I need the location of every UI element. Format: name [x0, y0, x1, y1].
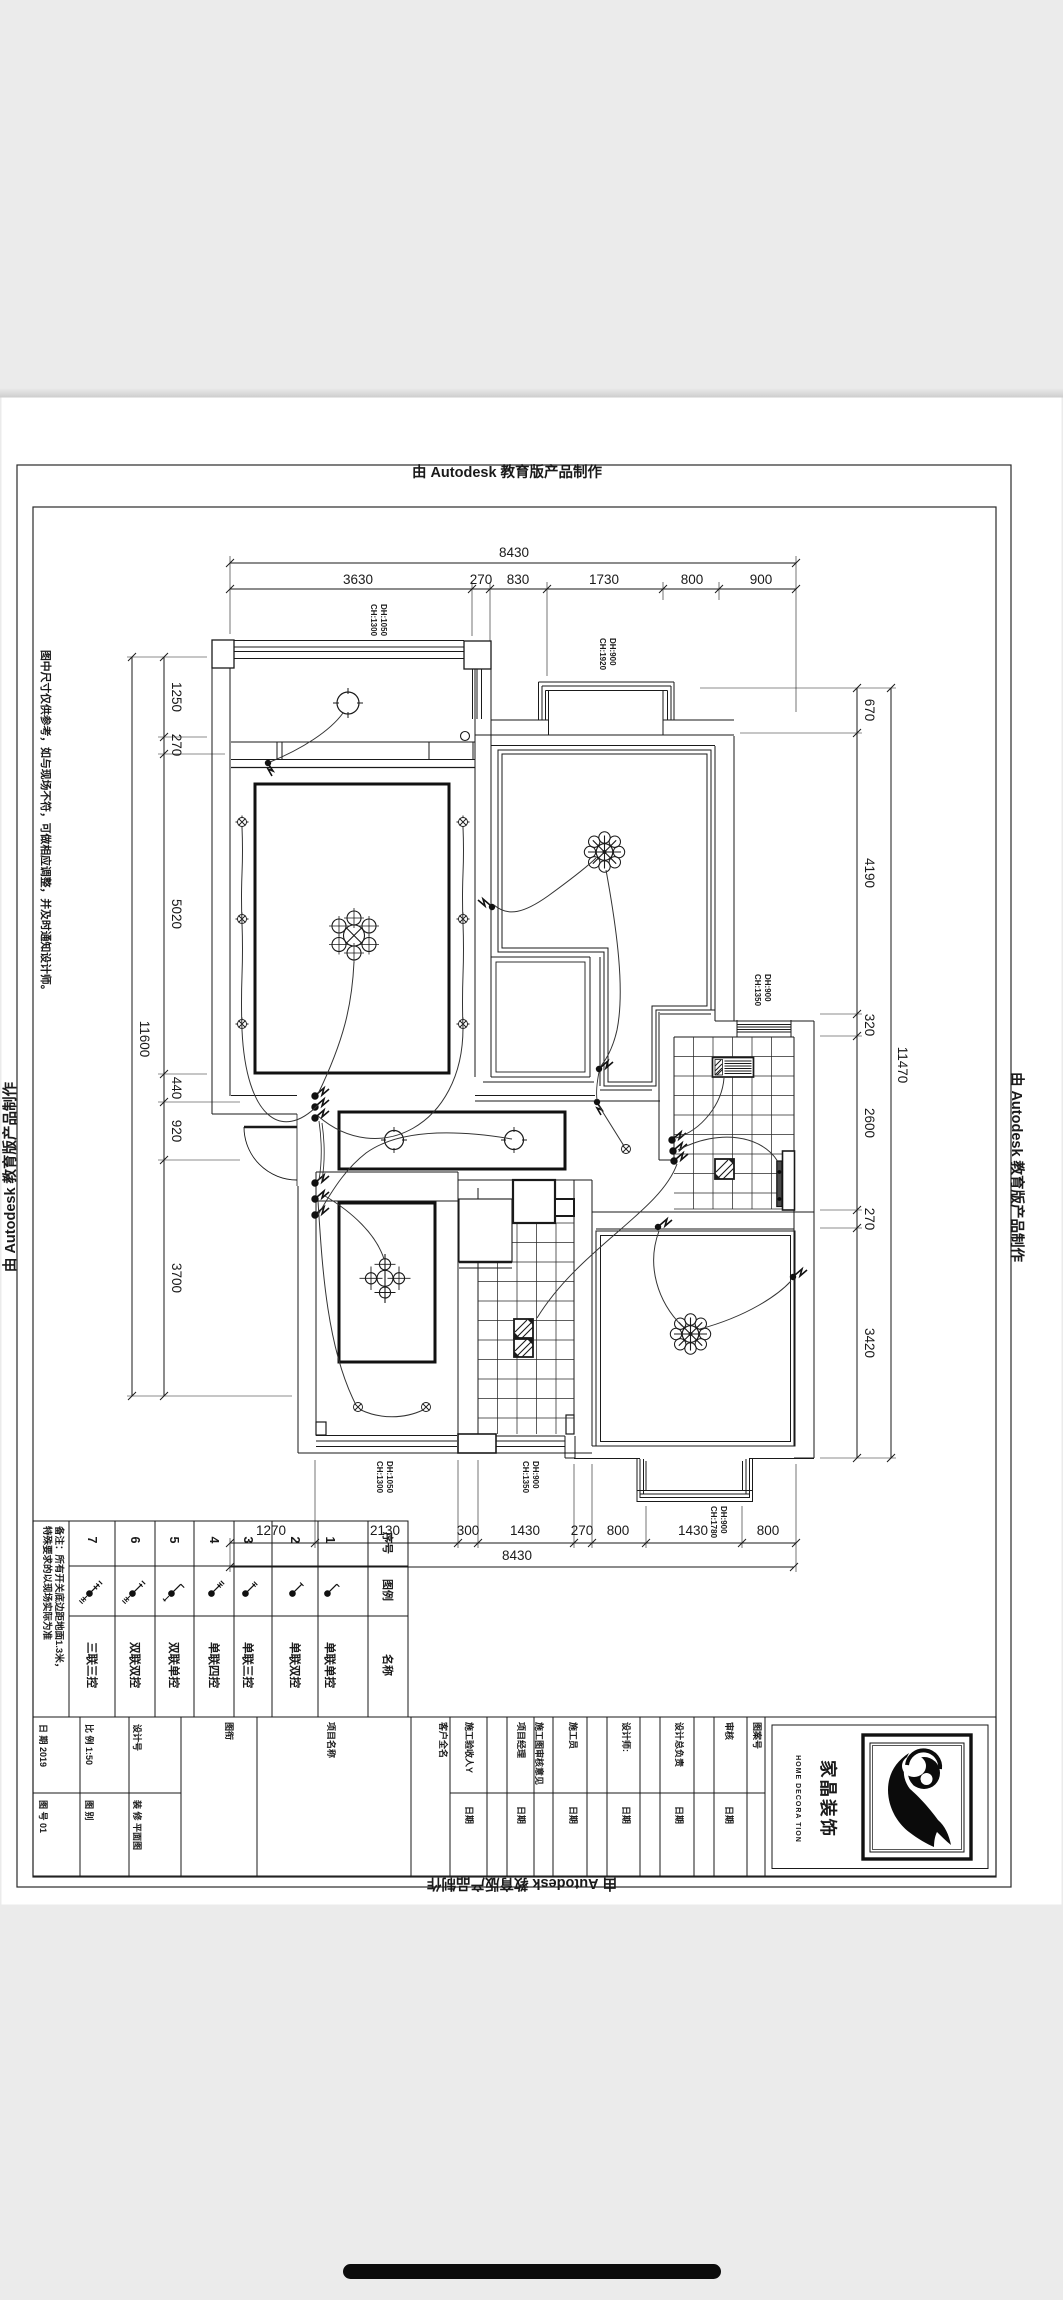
svg-text:序号: 序号 — [381, 1532, 395, 1554]
svg-text:1250: 1250 — [169, 682, 184, 712]
svg-text:单联三控: 单联三控 — [241, 1642, 255, 1688]
svg-text:三联三控: 三联三控 — [85, 1642, 99, 1688]
svg-text:3630: 3630 — [343, 572, 373, 587]
svg-text:1730: 1730 — [589, 572, 619, 587]
svg-text:图衔: 图衔 — [224, 1722, 235, 1740]
svg-text:施工员: 施工员 — [568, 1722, 579, 1749]
svg-text:11600: 11600 — [137, 1021, 152, 1058]
svg-text:DH:900: DH:900 — [719, 1506, 728, 1534]
svg-text:图 号 01: 图 号 01 — [38, 1800, 48, 1833]
svg-text:比 例 1:50: 比 例 1:50 — [84, 1724, 95, 1765]
svg-text:320: 320 — [862, 1014, 877, 1037]
svg-text:800: 800 — [681, 572, 704, 587]
svg-text:2600: 2600 — [862, 1108, 877, 1138]
svg-text:1270: 1270 — [256, 1523, 286, 1538]
svg-text:设计总负责: 设计总负责 — [674, 1722, 685, 1767]
svg-text:日 期 2019: 日 期 2019 — [38, 1724, 49, 1767]
svg-text:单联双控: 单联双控 — [288, 1642, 302, 1688]
svg-text:设计号: 设计号 — [132, 1724, 143, 1751]
svg-text:300: 300 — [457, 1523, 480, 1538]
svg-text:CH:1780: CH:1780 — [709, 1506, 718, 1539]
svg-text:DH:900: DH:900 — [608, 638, 617, 666]
svg-text:270: 270 — [862, 1208, 877, 1231]
svg-text:5020: 5020 — [169, 899, 184, 929]
svg-text:2: 2 — [288, 1537, 302, 1544]
svg-text:3700: 3700 — [169, 1263, 184, 1293]
svg-text:11470: 11470 — [895, 1047, 910, 1084]
svg-text:施工验收人Y: 施工验收人Y — [464, 1722, 475, 1773]
svg-text:920: 920 — [169, 1120, 184, 1143]
svg-text:CH:1350: CH:1350 — [521, 1461, 530, 1494]
svg-text:DH:1050: DH:1050 — [379, 604, 388, 637]
svg-text:DH:900: DH:900 — [763, 974, 772, 1002]
svg-text:6: 6 — [128, 1537, 142, 1544]
svg-text:270: 270 — [571, 1523, 594, 1538]
svg-text:800: 800 — [607, 1523, 630, 1538]
svg-text:DH:1050: DH:1050 — [385, 1461, 394, 1494]
svg-text:项目经理: 项目经理 — [516, 1722, 527, 1758]
svg-text:客户全名: 客户全名 — [438, 1721, 449, 1758]
svg-text:日期: 日期 — [516, 1806, 527, 1824]
svg-text:由 Autodesk 教育版产品制作: 由 Autodesk 教育版产品制作 — [412, 463, 603, 481]
svg-text:图中尺寸仅供参考，如与现场不符，可做相应调整，并及时通知设计: 图中尺寸仅供参考，如与现场不符，可做相应调整，并及时通知设计师。 — [39, 650, 53, 996]
svg-text:270: 270 — [470, 572, 493, 587]
svg-text:3: 3 — [241, 1537, 255, 1544]
svg-text:440: 440 — [169, 1077, 184, 1100]
svg-text:800: 800 — [757, 1523, 780, 1538]
svg-text:830: 830 — [507, 572, 530, 587]
svg-text:5: 5 — [167, 1537, 181, 1544]
svg-text:设计师:: 设计师: — [621, 1722, 632, 1752]
svg-text:7: 7 — [85, 1537, 99, 1544]
svg-text:CH:1300: CH:1300 — [375, 1461, 384, 1494]
svg-text:8430: 8430 — [499, 545, 529, 560]
svg-text:施工图审核意见: 施工图审核意见 — [534, 1722, 545, 1785]
svg-text:3420: 3420 — [862, 1328, 877, 1358]
svg-text:双联单控: 双联单控 — [167, 1641, 181, 1688]
svg-text:DH:900: DH:900 — [531, 1461, 540, 1489]
svg-text:项目名称: 项目名称 — [326, 1722, 337, 1758]
svg-text:日期: 日期 — [464, 1806, 475, 1824]
svg-text:CH:1920: CH:1920 — [598, 638, 607, 671]
svg-text:单联四控: 单联四控 — [207, 1642, 221, 1688]
svg-text:900: 900 — [750, 572, 773, 587]
svg-text:4: 4 — [207, 1537, 221, 1544]
svg-text:由 Autodesk 教育版产品制作: 由 Autodesk 教育版产品制作 — [426, 1875, 617, 1893]
svg-text:CH:1350: CH:1350 — [753, 974, 762, 1007]
svg-text:单联单控: 单联单控 — [323, 1642, 337, 1688]
svg-text:270: 270 — [169, 734, 184, 757]
svg-text:双联双控: 双联双控 — [128, 1641, 142, 1688]
svg-text:4190: 4190 — [862, 858, 877, 888]
svg-text:日期: 日期 — [674, 1806, 685, 1824]
svg-text:1430: 1430 — [510, 1523, 540, 1538]
svg-text:图案号: 图案号 — [752, 1722, 763, 1749]
svg-text:审核: 审核 — [724, 1722, 735, 1740]
svg-text:8430: 8430 — [502, 1548, 532, 1563]
svg-text:1430: 1430 — [678, 1523, 708, 1538]
svg-text:1: 1 — [323, 1537, 337, 1544]
svg-text:日期: 日期 — [621, 1806, 632, 1824]
svg-text:日期: 日期 — [724, 1806, 735, 1824]
svg-text:日期: 日期 — [568, 1806, 579, 1824]
svg-text:由 Autodesk 教育版产品制作: 由 Autodesk 教育版产品制作 — [1, 1081, 19, 1272]
svg-text:图例: 图例 — [381, 1579, 395, 1601]
svg-text:备注：所有开关底边距地面1.3米，: 备注：所有开关底边距地面1.3米， — [53, 1525, 65, 1672]
svg-text:图 别: 图 别 — [84, 1800, 95, 1821]
svg-text:CH:1300: CH:1300 — [369, 604, 378, 637]
svg-text:名称: 名称 — [381, 1654, 395, 1676]
svg-text:特殊要求的以现场实际为准: 特殊要求的以现场实际为准 — [41, 1526, 53, 1641]
svg-text:由 Autodesk 教育版产品制作: 由 Autodesk 教育版产品制作 — [1008, 1072, 1026, 1263]
svg-text:装 修 平面图: 装 修 平面图 — [132, 1799, 143, 1850]
svg-text:家晶装饰: 家晶装饰 — [818, 1760, 838, 1838]
svg-text:670: 670 — [862, 699, 877, 722]
svg-text:HOME DECORA TION: HOME DECORA TION — [794, 1755, 801, 1843]
